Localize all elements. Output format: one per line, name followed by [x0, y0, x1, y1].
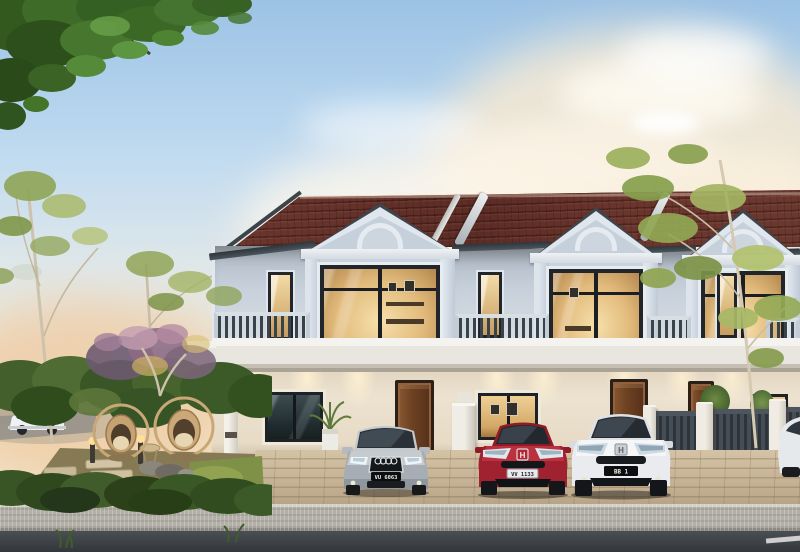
hanging-egg-chair [155, 398, 213, 460]
cloud [620, 30, 770, 80]
sideboard [565, 326, 591, 331]
terrace-house-render: VU 6063 H VV 1133 [0, 0, 800, 552]
balcony-window [320, 265, 440, 348]
sideboard [386, 319, 424, 324]
license-plate: VU 6063 [375, 475, 398, 481]
balcony-railing [455, 314, 549, 339]
license-plate: VV 1133 [511, 472, 534, 478]
grass-tuft [56, 524, 244, 548]
cloud [300, 100, 480, 150]
picture-frame [507, 403, 517, 415]
cornice [301, 249, 459, 259]
picture-frame [405, 281, 414, 291]
svg-text:H: H [520, 451, 526, 460]
picture-frame [570, 288, 578, 297]
license-plate: BB 1 [614, 470, 628, 476]
pilaster [440, 259, 455, 348]
cloud [630, 112, 700, 134]
front-garden [0, 96, 272, 552]
shelf [386, 302, 424, 306]
picture-frame [491, 405, 499, 414]
silver-sedan: VU 6063 [341, 417, 431, 497]
gable-unit-1 [305, 203, 455, 345]
picture-frame [389, 283, 396, 291]
foreground-tree [598, 138, 800, 452]
red-coupe: H VV 1133 [475, 419, 571, 499]
